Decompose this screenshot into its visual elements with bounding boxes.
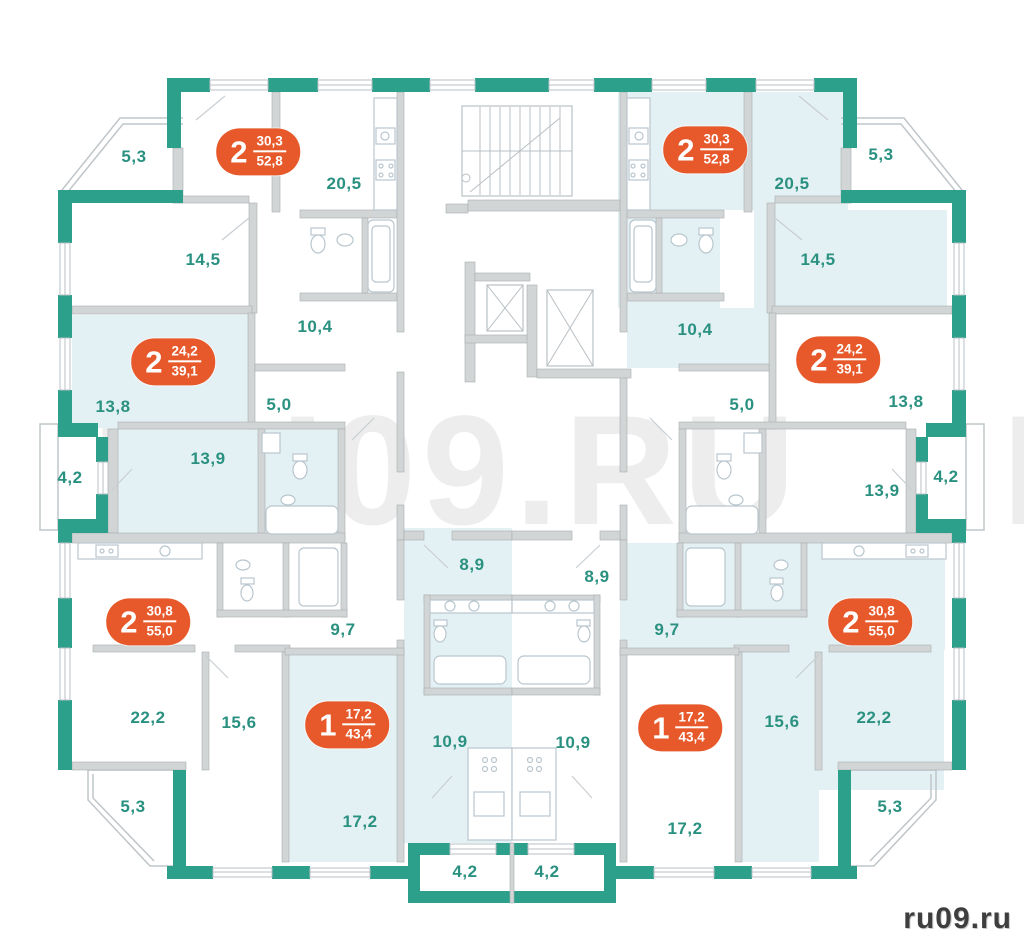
room-area-label: 8,9 <box>459 555 484 575</box>
apartment-total-area: 43,4 <box>342 726 374 743</box>
room-area-label: 22,2 <box>130 708 165 728</box>
apartment-living-area: 24,2 <box>168 343 200 362</box>
apartment-living-area: 30,3 <box>253 133 285 152</box>
room-area-label: 15,6 <box>221 713 256 733</box>
room-area-label: 10,9 <box>432 732 467 752</box>
apartment-living-area: 30,8 <box>143 603 175 622</box>
site-logo: ru09.ru <box>903 902 1012 936</box>
apartment-rooms-count: 1 <box>319 709 336 740</box>
room-area-label: 15,6 <box>764 712 799 732</box>
room-area-label: 4,2 <box>452 862 477 882</box>
apartment-rooms-count: 2 <box>677 134 694 165</box>
room-area-label: 9,7 <box>330 620 355 640</box>
room-area-label: 4,2 <box>534 862 559 882</box>
room-area-label: 13,8 <box>95 397 130 417</box>
room-area-label: 10,4 <box>677 320 712 340</box>
apartment-badge: 230,352,8 <box>663 126 747 173</box>
apartment-living-area: 24,2 <box>833 341 865 360</box>
room-area-label: 20,5 <box>774 174 809 194</box>
room-area-label: 5,0 <box>729 395 754 415</box>
room-area-label: 8,9 <box>584 567 609 587</box>
room-area-label: 13,9 <box>864 481 899 501</box>
apartment-badge: 224,239,1 <box>131 338 215 385</box>
apartment-badge: 230,855,0 <box>828 598 912 645</box>
room-area-label: 13,9 <box>190 449 225 469</box>
apartment-total-area: 55,0 <box>143 623 175 640</box>
apartment-total-area: 52,8 <box>253 153 285 170</box>
room-area-label: 10,9 <box>555 733 590 753</box>
apartment-badge: 230,352,8 <box>216 128 300 175</box>
room-area-label: 14,5 <box>185 250 220 270</box>
apartment-total-area: 55,0 <box>865 623 897 640</box>
room-area-label: 17,2 <box>667 819 702 839</box>
apartment-living-area: 17,2 <box>675 709 707 728</box>
apartment-total-area: 39,1 <box>168 363 200 380</box>
room-area-label: 17,2 <box>342 812 377 832</box>
room-area-label: 22,2 <box>856 708 891 728</box>
apartment-living-area: 17,2 <box>342 706 374 725</box>
floorplan-graphic <box>0 0 1024 950</box>
room-area-label: 5,3 <box>120 797 145 817</box>
apartment-total-area: 52,8 <box>700 151 732 168</box>
staircase <box>462 106 572 196</box>
apartment-badge: 230,855,0 <box>106 598 190 645</box>
apartment-badge: 117,243,4 <box>638 704 722 751</box>
apartment-living-area: 30,8 <box>865 603 897 622</box>
floorplan-page: RU09.RU RU09.RU <box>0 0 1024 950</box>
room-area-label: 9,7 <box>654 620 679 640</box>
room-area-label: 4,2 <box>57 468 82 488</box>
room-area-label: 5,3 <box>121 147 146 167</box>
room-area-label: 5,3 <box>868 145 893 165</box>
room-area-label: 20,5 <box>326 174 361 194</box>
elevator-shafts <box>487 285 593 366</box>
apartment-badge: 224,239,1 <box>796 336 880 383</box>
room-area-label: 10,4 <box>297 317 332 337</box>
apartment-badge: 117,243,4 <box>305 701 389 748</box>
room-area-label: 5,3 <box>877 797 902 817</box>
apartment-rooms-count: 2 <box>810 344 827 375</box>
room-area-label: 13,8 <box>888 392 923 412</box>
apartment-rooms-count: 2 <box>120 606 137 637</box>
room-area-label: 4,2 <box>933 467 958 487</box>
apartment-rooms-count: 2 <box>842 606 859 637</box>
room-area-label: 5,0 <box>266 395 291 415</box>
apartment-total-area: 39,1 <box>833 361 865 378</box>
apartment-rooms-count: 2 <box>145 346 162 377</box>
apartment-total-area: 43,4 <box>675 729 707 746</box>
apartment-rooms-count: 1 <box>652 712 669 743</box>
room-area-label: 14,5 <box>800 250 835 270</box>
apartment-living-area: 30,3 <box>700 131 732 150</box>
apartment-rooms-count: 2 <box>230 136 247 167</box>
